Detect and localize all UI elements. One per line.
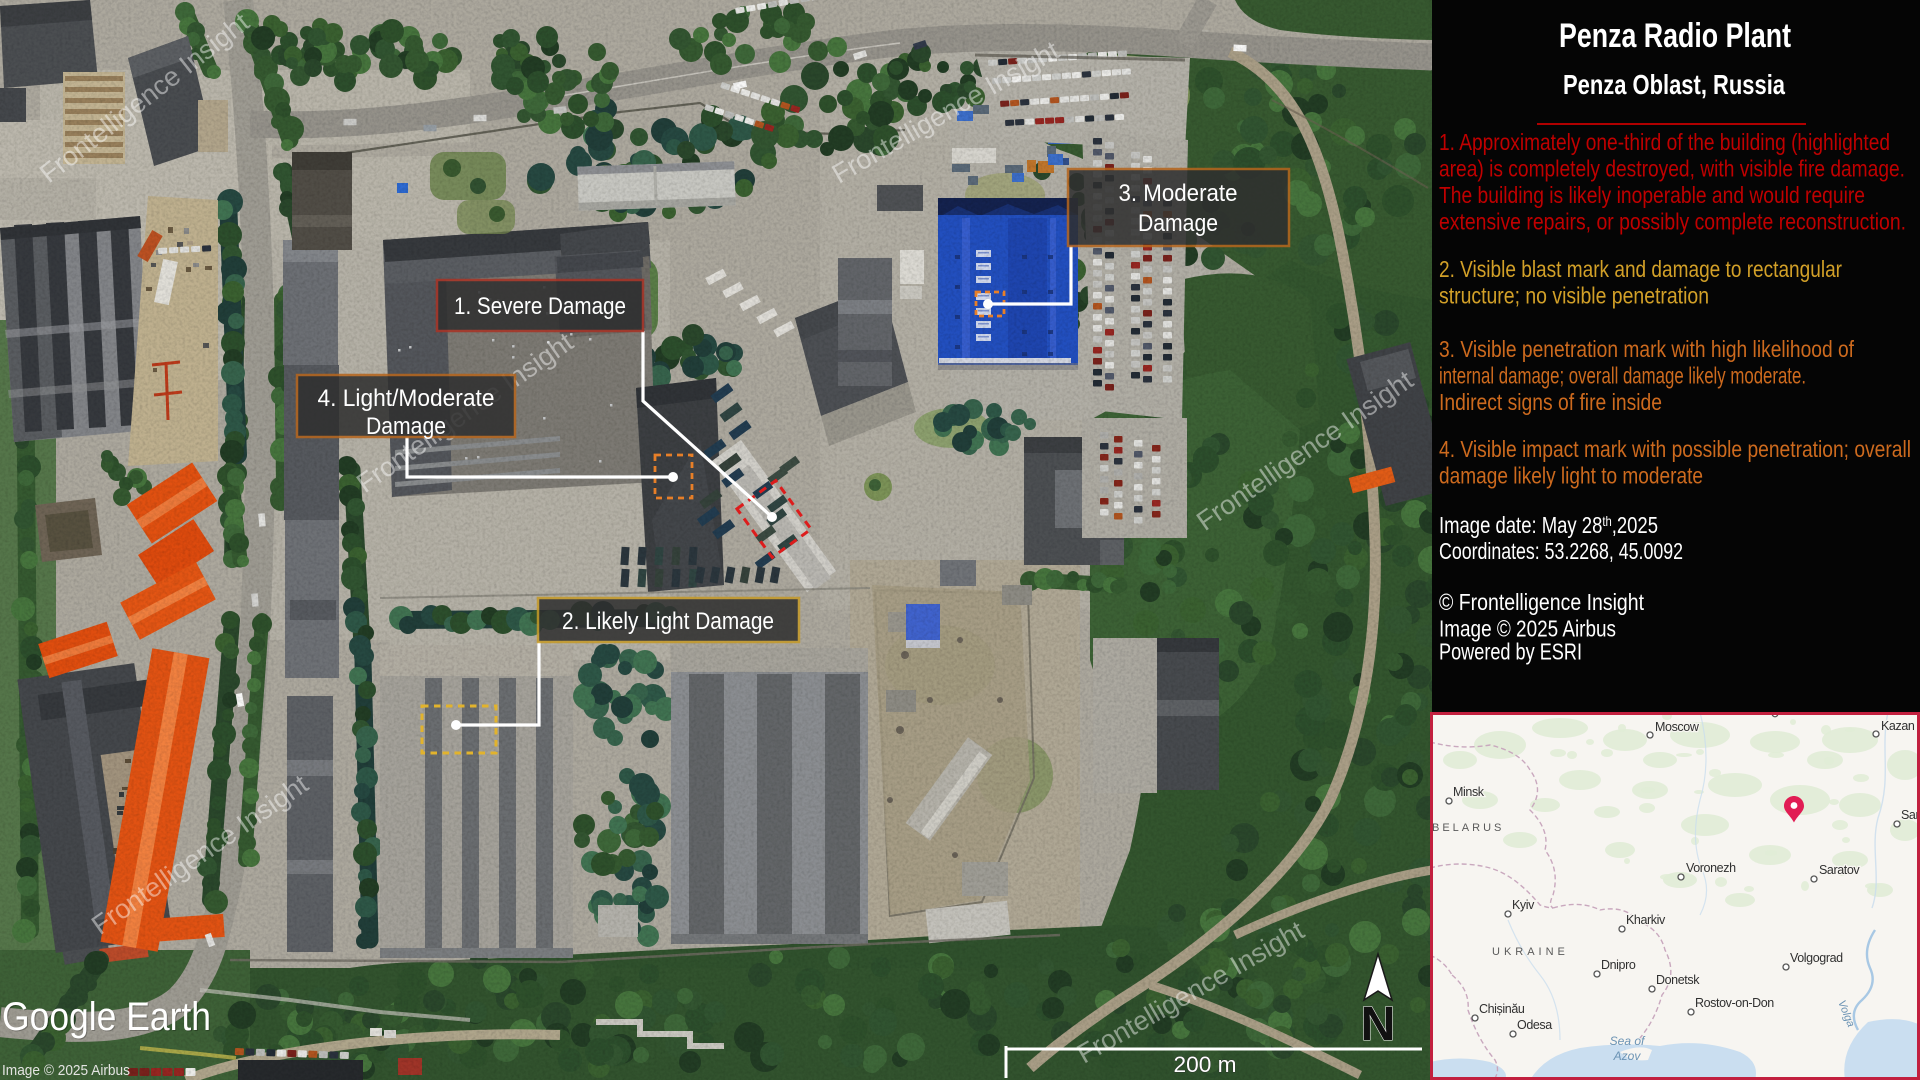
svg-text:Dnipro: Dnipro <box>1601 958 1636 972</box>
svg-text:Minsk: Minsk <box>1453 785 1485 799</box>
svg-text:1. Approximately one-third of: 1. Approximately one-third of the buildi… <box>1439 129 1890 155</box>
svg-text:Image date: May 28th,2025: Image date: May 28th,2025 <box>1439 512 1658 538</box>
svg-text:structure; no visible penetrat: structure; no visible penetration <box>1439 283 1709 309</box>
svg-text:Indirect signs of fire inside: Indirect signs of fire inside <box>1439 389 1662 415</box>
svg-text:4. Visible impact mark with po: 4. Visible impact mark with possible pen… <box>1439 436 1911 462</box>
svg-text:Rostov-on-Don: Rostov-on-Don <box>1695 996 1774 1010</box>
svg-text:Moscow: Moscow <box>1655 720 1700 734</box>
svg-text:Azov: Azov <box>1613 1049 1642 1063</box>
svg-text:© Frontelligence Insight: © Frontelligence Insight <box>1439 589 1645 615</box>
svg-text:internal damage; overall damag: internal damage; overall damage likely m… <box>1439 363 1806 389</box>
svg-text:Odesa: Odesa <box>1517 1018 1552 1032</box>
svg-text:2. Visible blast mark and dama: 2. Visible blast mark and damage to rect… <box>1439 256 1842 282</box>
svg-text:Kyiv: Kyiv <box>1512 898 1535 912</box>
svg-text:Voronezh: Voronezh <box>1686 861 1736 875</box>
svg-text:N: N <box>1361 998 1396 1051</box>
svg-text:UKRAINE: UKRAINE <box>1492 946 1569 958</box>
svg-text:extensive repairs, or possibly: extensive repairs, or possibly complete … <box>1439 209 1906 235</box>
svg-text:Kharkiv: Kharkiv <box>1626 913 1666 927</box>
svg-text:Powered by ESRI: Powered by ESRI <box>1439 639 1582 665</box>
svg-text:200 m: 200 m <box>1174 1052 1237 1077</box>
svg-text:1. Severe Damage: 1. Severe Damage <box>454 293 626 320</box>
svg-text:2. Likely Light Damage: 2. Likely Light Damage <box>562 608 774 635</box>
svg-text:Sea of: Sea of <box>1610 1034 1646 1048</box>
svg-text:damage likely light to moderat: damage likely light to moderate <box>1439 463 1703 489</box>
svg-text:Penza Radio Plant: Penza Radio Plant <box>1559 17 1791 55</box>
svg-text:3. Visible penetration mark wi: 3. Visible penetration mark with high li… <box>1439 336 1855 362</box>
svg-text:Penza Oblast, Russia: Penza Oblast, Russia <box>1563 69 1785 100</box>
svg-text:Chișinău: Chișinău <box>1479 1002 1525 1016</box>
svg-text:BELARUS: BELARUS <box>1432 822 1504 834</box>
svg-text:Damage: Damage <box>366 413 446 440</box>
svg-text:Damage: Damage <box>1138 210 1218 237</box>
svg-text:Donetsk: Donetsk <box>1656 973 1700 987</box>
svg-text:4. Light/Moderate: 4. Light/Moderate <box>318 385 495 412</box>
svg-text:Coordinates: 53.2268, 45.0092: Coordinates: 53.2268, 45.0092 <box>1439 538 1683 564</box>
svg-text:3. Moderate: 3. Moderate <box>1119 180 1238 207</box>
svg-text:The building is likely inopera: The building is likely inoperable and wo… <box>1439 182 1865 208</box>
svg-text:area) is completely destroyed,: area) is completely destroyed, with visi… <box>1439 156 1905 182</box>
svg-text:Volgograd: Volgograd <box>1790 951 1843 965</box>
svg-text:Saratov: Saratov <box>1819 863 1860 877</box>
svg-text:Google Earth: Google Earth <box>2 995 211 1039</box>
svg-text:Kazan: Kazan <box>1881 719 1915 733</box>
svg-text:Image © 2025 Airbus: Image © 2025 Airbus <box>2 1063 130 1079</box>
